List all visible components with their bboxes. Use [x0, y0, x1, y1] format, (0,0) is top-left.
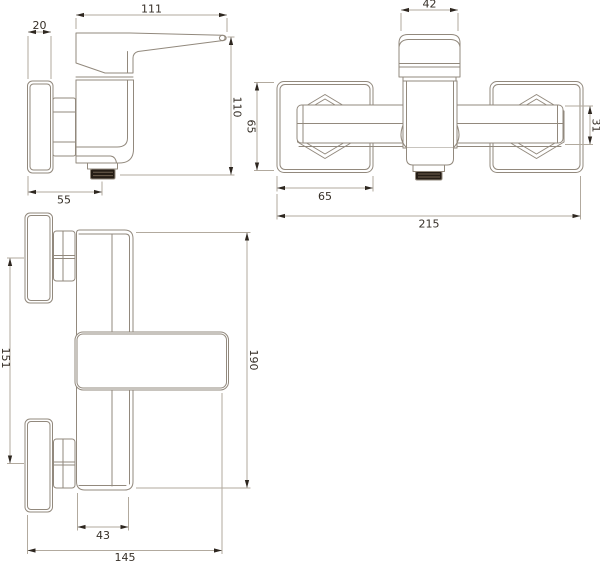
side-lever-handle [76, 33, 226, 73]
dim-label: 110 [231, 97, 244, 118]
dim-top-handle-width: 42 [401, 0, 458, 31]
front-view: 151 190 43 145 [0, 213, 260, 562]
dim-label: 55 [57, 194, 71, 207]
front-bottom-wall-plate [25, 419, 53, 512]
front-connecting-bar [75, 332, 229, 390]
top-outlet [413, 165, 445, 180]
dim-label: 20 [33, 19, 47, 32]
side-outlet-collar [88, 163, 118, 169]
side-outlet [88, 163, 118, 179]
side-body [76, 80, 134, 163]
dim-label: 65 [245, 120, 258, 134]
top-view: 42 65 31 65 215 [245, 0, 600, 231]
dim-side-outlet-offset: 55 [28, 176, 102, 207]
dim-top-escutcheon-width: 65 [277, 176, 373, 203]
dim-label: 43 [96, 529, 110, 542]
dim-label: 111 [141, 3, 162, 16]
dim-front-body-width: 43 [78, 493, 129, 542]
dim-label: 42 [423, 0, 437, 11]
side-outlet-thread [91, 169, 116, 179]
dim-label: 31 [590, 119, 600, 133]
front-top-wall-plate [25, 213, 53, 303]
dim-label: 190 [247, 350, 260, 371]
side-wall-plate [28, 81, 54, 173]
faucet-technical-drawing: 20 111 110 55 [0, 0, 600, 562]
drawing-canvas: 20 111 110 55 [0, 0, 600, 562]
top-mixer-body [401, 81, 459, 165]
dim-top-overall-width: 215 [277, 176, 581, 231]
top-outlet-thread [416, 172, 443, 181]
dim-front-centers-distance: 151 [0, 258, 24, 464]
side-view: 20 111 110 55 [28, 3, 244, 207]
side-wall-plate-inner [30, 84, 51, 170]
front-bottom-hex-nut [54, 439, 76, 488]
dim-side-overall-height: 110 [120, 37, 244, 175]
dim-top-escutcheon-height: 65 [245, 83, 275, 171]
dim-label: 145 [115, 551, 136, 562]
top-outlet-collar [413, 165, 445, 172]
side-hex-nut [53, 98, 76, 156]
dim-side-lever-length: 111 [76, 3, 227, 33]
top-handle [399, 35, 460, 82]
dim-side-plate-thickness: 20 [28, 19, 51, 79]
front-top-hex-nut [54, 231, 76, 281]
dim-label: 151 [0, 348, 12, 369]
dim-label: 65 [318, 190, 332, 203]
dim-label: 215 [419, 218, 440, 231]
top-body-bottom [407, 148, 454, 165]
